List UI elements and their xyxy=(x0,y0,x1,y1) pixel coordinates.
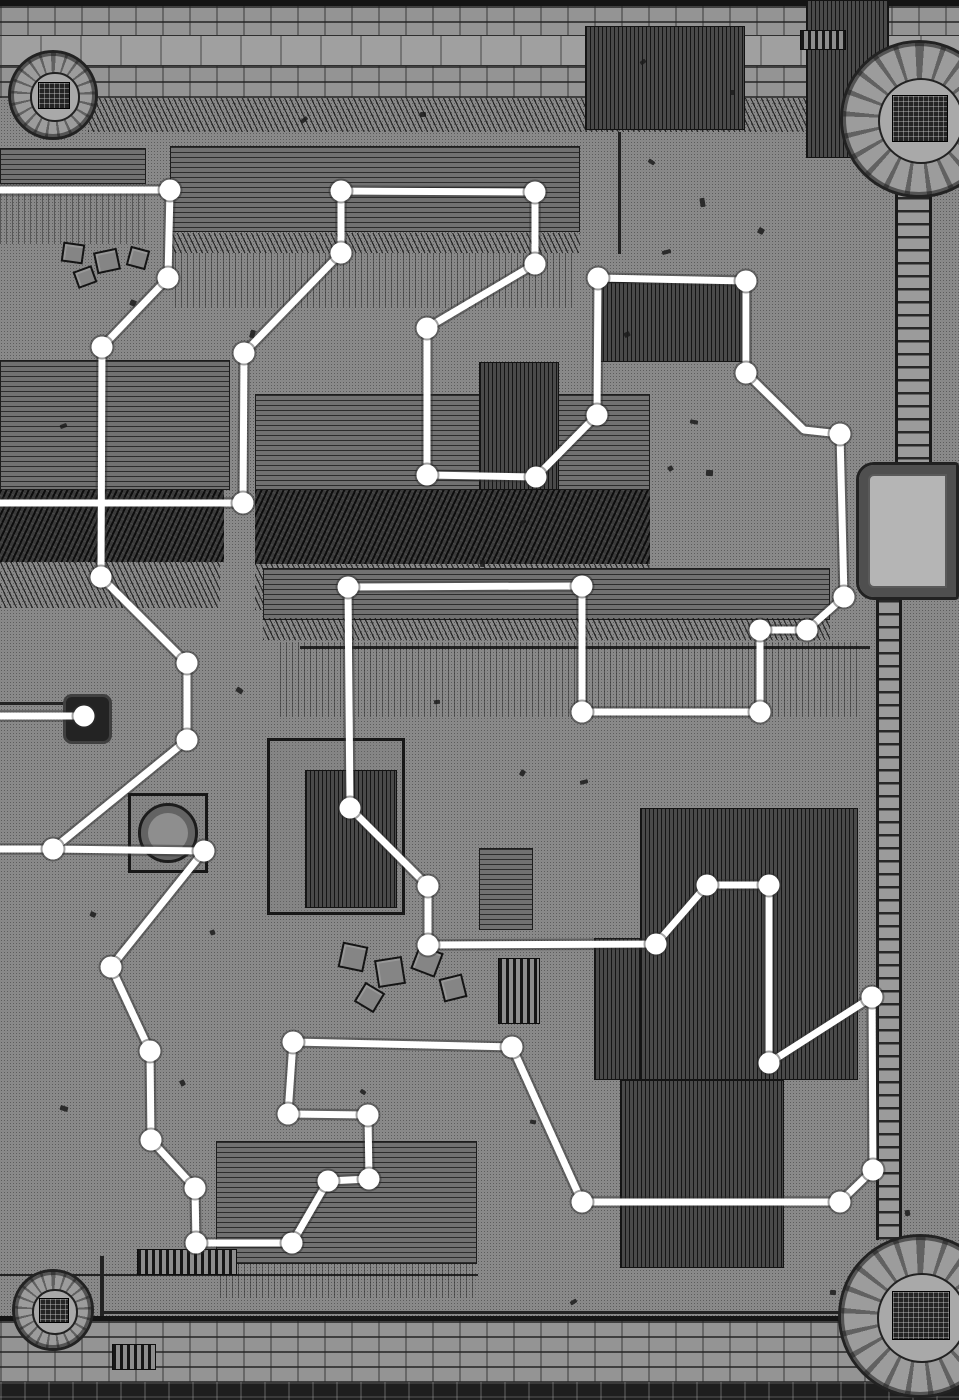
route-node[interactable] xyxy=(158,268,179,289)
route-node[interactable] xyxy=(588,268,609,289)
route-node[interactable] xyxy=(160,180,181,201)
route-node[interactable] xyxy=(834,587,855,608)
route-node[interactable] xyxy=(750,702,771,723)
route-node[interactable] xyxy=(572,702,593,723)
route-node[interactable] xyxy=(359,1169,380,1190)
route-node[interactable] xyxy=(233,493,254,514)
route-node[interactable] xyxy=(830,1192,851,1213)
main-route-halo xyxy=(0,190,873,1243)
route-node[interactable] xyxy=(750,620,771,641)
route-node[interactable] xyxy=(74,706,95,727)
route-node[interactable] xyxy=(91,567,112,588)
route-node[interactable] xyxy=(572,1192,593,1213)
route-node[interactable] xyxy=(863,1160,884,1181)
route-node[interactable] xyxy=(338,577,359,598)
route-node[interactable] xyxy=(862,987,883,1008)
route-node[interactable] xyxy=(526,467,547,488)
route-node[interactable] xyxy=(830,424,851,445)
route-node[interactable] xyxy=(759,1053,780,1074)
route-node[interactable] xyxy=(177,653,198,674)
route-node[interactable] xyxy=(417,465,438,486)
route-node[interactable] xyxy=(92,337,113,358)
route-node[interactable] xyxy=(697,875,718,896)
route-node[interactable] xyxy=(283,1032,304,1053)
route-node[interactable] xyxy=(418,876,439,897)
route-node[interactable] xyxy=(194,841,215,862)
route-node[interactable] xyxy=(177,730,198,751)
route-node[interactable] xyxy=(278,1104,299,1125)
route-node[interactable] xyxy=(340,798,361,819)
route-node[interactable] xyxy=(646,934,667,955)
route-node[interactable] xyxy=(587,405,608,426)
route-node[interactable] xyxy=(141,1130,162,1151)
route-node[interactable] xyxy=(331,181,352,202)
route-node[interactable] xyxy=(318,1171,339,1192)
route-node[interactable] xyxy=(736,363,757,384)
route-overlay xyxy=(0,0,959,1400)
route-node[interactable] xyxy=(331,243,352,264)
route-node[interactable] xyxy=(101,957,122,978)
battle-map xyxy=(0,0,959,1400)
route-node[interactable] xyxy=(358,1105,379,1126)
route-node[interactable] xyxy=(185,1178,206,1199)
route-node[interactable] xyxy=(140,1041,161,1062)
route-node[interactable] xyxy=(418,935,439,956)
route-node[interactable] xyxy=(502,1037,523,1058)
route-node[interactable] xyxy=(43,839,64,860)
route-node[interactable] xyxy=(572,576,593,597)
route-node[interactable] xyxy=(525,182,546,203)
route-node[interactable] xyxy=(186,1233,207,1254)
route-node[interactable] xyxy=(736,271,757,292)
route-node[interactable] xyxy=(797,620,818,641)
route-node[interactable] xyxy=(417,318,438,339)
route-node[interactable] xyxy=(759,875,780,896)
route-node[interactable] xyxy=(282,1233,303,1254)
route-node[interactable] xyxy=(525,254,546,275)
route-node[interactable] xyxy=(234,343,255,364)
